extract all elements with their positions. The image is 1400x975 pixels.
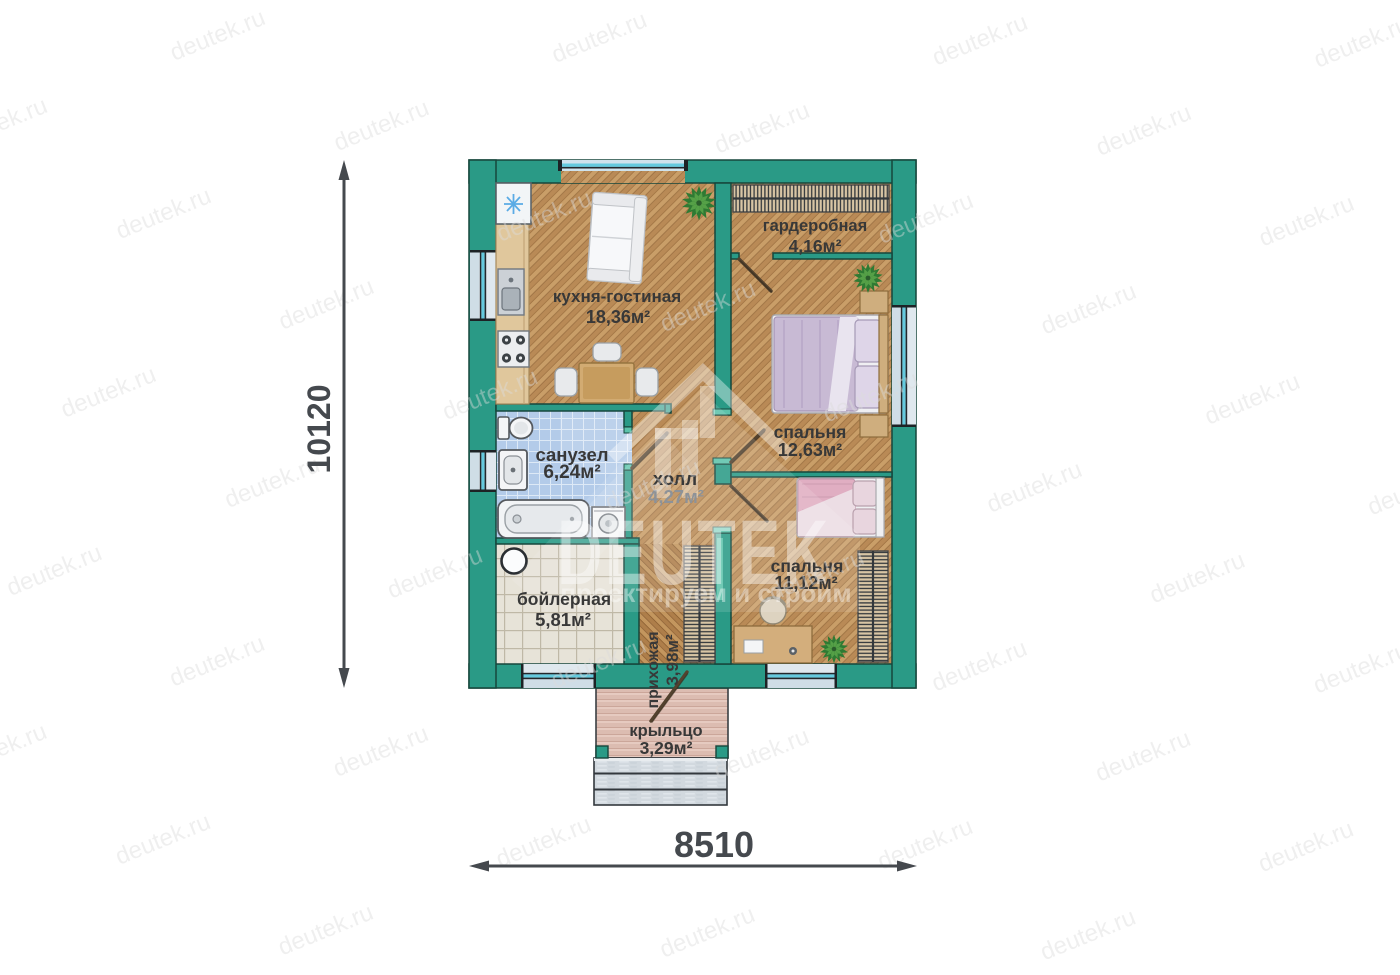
svg-text:10120: 10120 xyxy=(301,385,337,474)
svg-text:прихожая: прихожая xyxy=(645,631,662,708)
svg-text:4,16м²: 4,16м² xyxy=(789,236,842,256)
svg-text:гардеробная: гардеробная xyxy=(763,217,868,235)
svg-text:6,24м²: 6,24м² xyxy=(543,462,600,483)
svg-text:кухня-гостиная: кухня-гостиная xyxy=(553,287,681,306)
svg-text:12,63м²: 12,63м² xyxy=(778,440,842,460)
svg-text:8510: 8510 xyxy=(674,824,754,865)
svg-text:3,29м²: 3,29м² xyxy=(640,738,693,758)
svg-text:3,98м²: 3,98м² xyxy=(663,634,682,686)
svg-text:18,36м²: 18,36м² xyxy=(586,307,650,327)
svg-text:5,81м²: 5,81м² xyxy=(535,609,591,630)
svg-text:бойлерная: бойлерная xyxy=(517,589,611,609)
